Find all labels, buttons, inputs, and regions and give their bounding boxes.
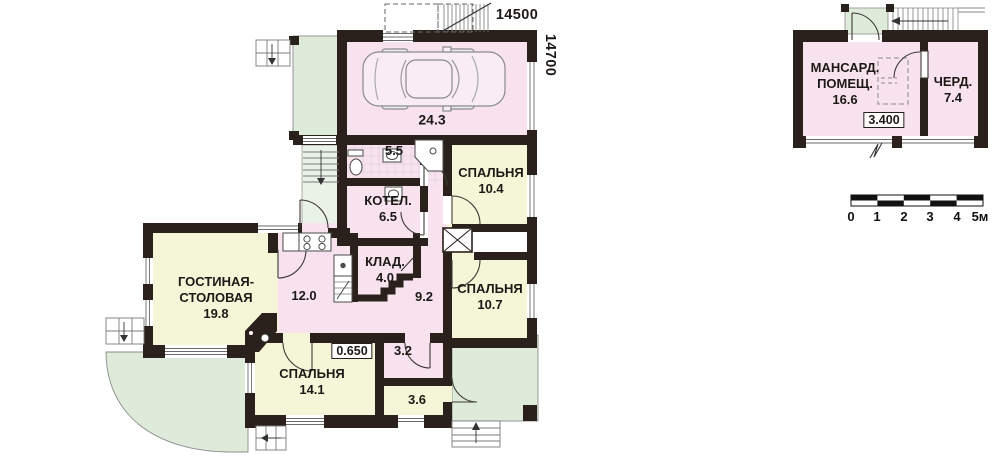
dimension-height: 14700 xyxy=(540,34,558,76)
room-label-kitchen: 12.0 xyxy=(291,288,316,304)
room-label-living: ГОСТИНАЯ- СТОЛОВАЯ 19.8 xyxy=(178,274,254,322)
scale-label-1: 1 xyxy=(873,209,880,224)
terrace-steps-icon xyxy=(106,318,144,344)
cellar-stairs-icon xyxy=(334,276,352,302)
scale-label-4: 4 xyxy=(953,209,960,224)
room-label-loft: ЧЕРД. 7.4 xyxy=(934,74,973,106)
scale-label-2: 2 xyxy=(900,209,907,224)
scale-label-3: 3 xyxy=(926,209,933,224)
floor-plan-canvas: 24.3 5.5 КОТЕЛ. 6.5 СПАЛЬНЯ 10.4 ГОСТИНА… xyxy=(0,0,1000,470)
room-label-bedroom3: СПАЛЬНЯ 14.1 xyxy=(279,366,344,398)
room-label-storage: КЛАД. 4.0 xyxy=(365,254,405,286)
room-label-entry: 3.2 xyxy=(394,343,412,359)
room-label-hall: 9.2 xyxy=(415,289,433,305)
room-label-attic-room: МАНСАРД. ПОМЕЩ. 16.6 xyxy=(811,60,880,108)
room-label-wc: 3.6 xyxy=(408,392,426,408)
terrace-steps-left-icon xyxy=(256,426,286,450)
attic-windows xyxy=(806,136,974,158)
scale-label-0: 0 xyxy=(847,209,854,224)
room-label-bedroom1: СПАЛЬНЯ 10.4 xyxy=(458,165,523,197)
kitchen-sink-icon xyxy=(334,255,352,276)
elevation-mark-attic: 3.400 xyxy=(863,112,904,128)
scale-label-5: 5м xyxy=(972,209,989,224)
car-icon xyxy=(363,47,505,111)
stove-icon xyxy=(283,233,331,251)
dimension-width: 14500 xyxy=(496,7,538,25)
round-terrace xyxy=(106,352,248,452)
roof-outline-and-external-stair xyxy=(385,3,491,32)
room-label-garage: 24.3 xyxy=(418,111,445,128)
entrance-stairs-icon xyxy=(452,421,500,447)
elevation-mark-main: 0.650 xyxy=(331,343,372,359)
stairs-top-left-icon xyxy=(256,40,290,66)
ventilation-shaft-icon xyxy=(443,228,472,252)
room-label-bedroom2: СПАЛЬНЯ 10.7 xyxy=(457,281,522,313)
room-label-bathroom: 5.5 xyxy=(385,143,403,159)
room-label-boiler: КОТЕЛ. 6.5 xyxy=(364,193,411,225)
scale-bar xyxy=(851,195,983,206)
